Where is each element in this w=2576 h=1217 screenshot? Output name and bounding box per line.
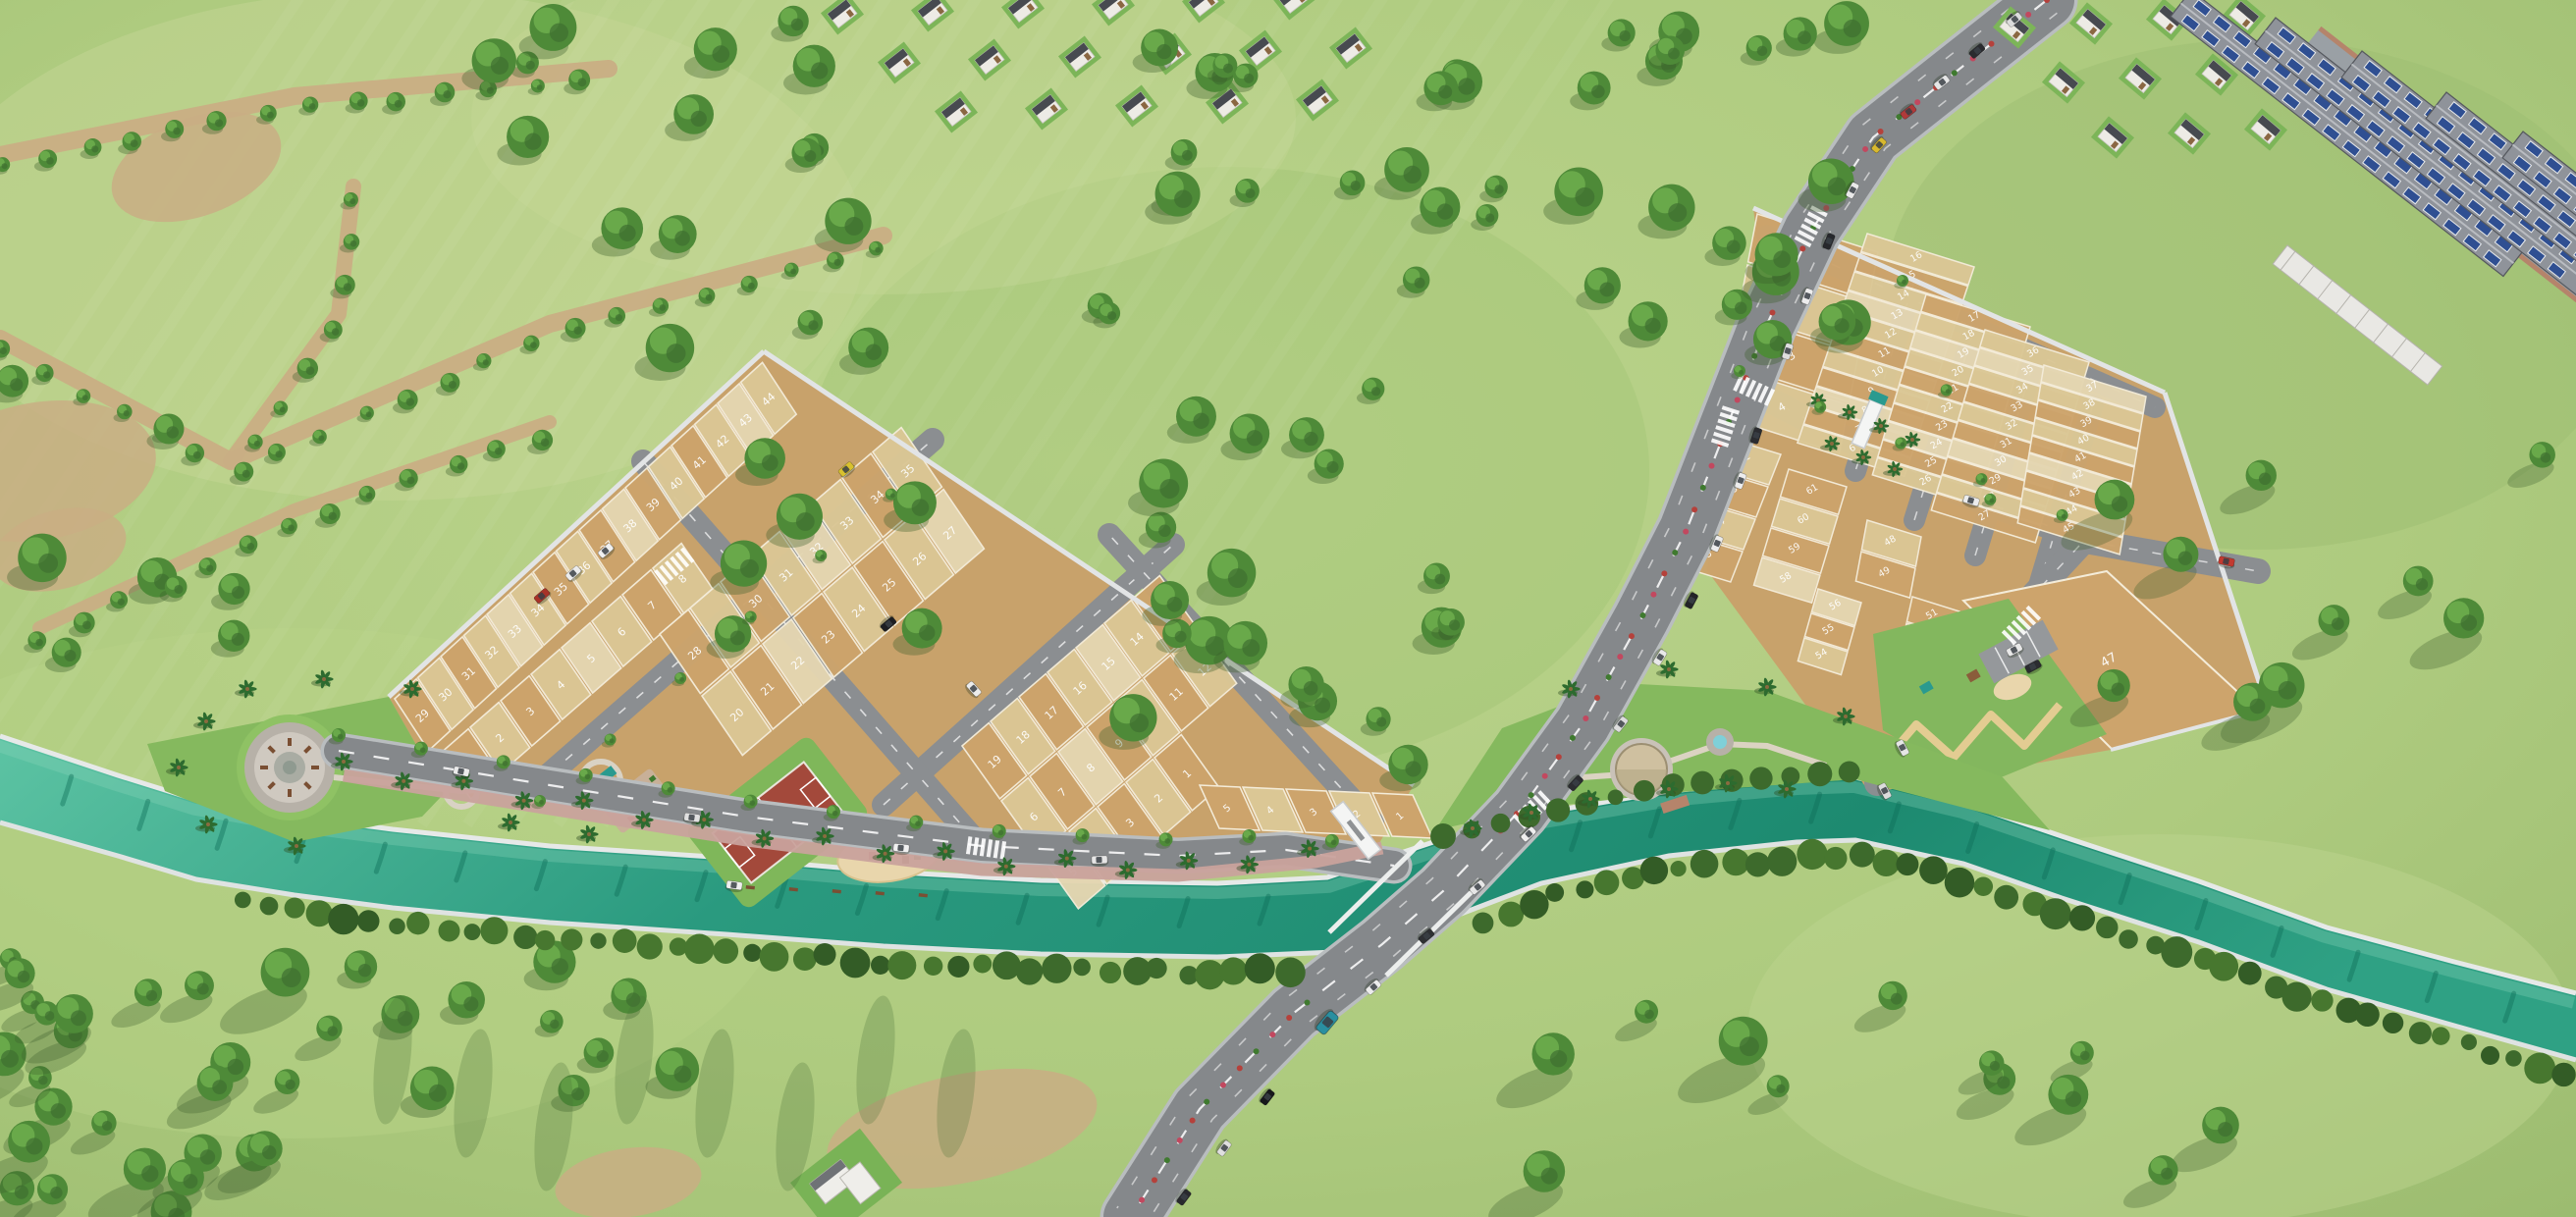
median-flowers: [1709, 463, 1715, 469]
shrub: [947, 956, 969, 978]
shrub: [513, 926, 537, 949]
shrub: [1546, 798, 1570, 821]
shrub: [2238, 962, 2262, 985]
median-flowers: [1629, 633, 1635, 639]
shrub: [406, 912, 429, 934]
shrub: [1520, 890, 1548, 919]
shrub: [743, 944, 761, 962]
shrub: [2481, 1046, 2499, 1065]
shrub: [535, 930, 555, 950]
shrub: [2209, 952, 2238, 981]
shrub: [1919, 856, 1948, 884]
bench: [288, 789, 292, 797]
shrub: [1016, 958, 1043, 984]
shrub: [1745, 852, 1770, 876]
median-flowers: [1661, 570, 1667, 576]
shrub: [2505, 1050, 2522, 1067]
shrub: [389, 919, 405, 935]
median-flowers: [1640, 612, 1646, 618]
shrub: [2409, 1022, 2432, 1044]
shrub: [285, 898, 305, 919]
median-flowers: [1769, 309, 1775, 315]
shrub: [439, 920, 460, 941]
shrub: [2551, 1063, 2575, 1086]
median-flowers: [1799, 245, 1805, 251]
shrub: [2040, 898, 2071, 929]
median-flowers: [1672, 550, 1678, 556]
shrub: [235, 892, 251, 909]
median-flowers: [1594, 695, 1600, 701]
shrub: [1945, 868, 1975, 898]
median-flowers: [1988, 41, 1994, 47]
shrub: [1749, 767, 1772, 789]
median-flowers: [1570, 735, 1576, 741]
shrub: [480, 917, 508, 944]
shrub: [613, 928, 637, 953]
shrub: [2461, 1034, 2477, 1050]
median-flowers: [1304, 1000, 1310, 1006]
shrub: [2524, 1052, 2555, 1084]
median-flowers: [1164, 1157, 1170, 1163]
shrub: [1722, 849, 1749, 876]
shrub: [2432, 1027, 2450, 1045]
median-flowers: [1220, 1083, 1226, 1088]
shrub: [1100, 962, 1121, 983]
shrub: [1850, 842, 1875, 868]
shrub: [993, 951, 1021, 979]
shrub: [1073, 959, 1091, 977]
bench: [288, 738, 292, 746]
median-flowers: [1556, 754, 1562, 760]
median-flowers: [1700, 485, 1706, 491]
shrub: [1690, 771, 1714, 795]
shrub: [1576, 880, 1593, 898]
shrub: [1896, 853, 1918, 875]
shrub: [1219, 957, 1247, 984]
median-flowers: [1914, 99, 1920, 105]
median-flowers: [1862, 146, 1868, 152]
shrub: [973, 955, 992, 974]
shrub: [464, 924, 481, 940]
shrub: [1973, 876, 1993, 896]
median-flowers: [1683, 529, 1689, 535]
shrub: [684, 934, 715, 965]
shrub: [357, 910, 379, 931]
shrub: [1640, 857, 1668, 884]
shrub: [1670, 861, 1686, 876]
shrub: [713, 938, 738, 964]
median-flowers: [1617, 654, 1623, 660]
shrub: [1608, 789, 1624, 805]
vehicle: [1091, 856, 1108, 868]
shrub: [2096, 917, 2119, 939]
shrub: [840, 948, 871, 979]
median-flowers: [1269, 1032, 1275, 1037]
shrub: [887, 951, 916, 979]
median-flowers: [1286, 1015, 1292, 1021]
median-flowers: [1583, 715, 1588, 721]
median-flowers: [2025, 12, 2031, 18]
shrub: [1767, 847, 1797, 876]
median-flowers: [1952, 70, 1958, 76]
shrub: [2355, 1003, 2380, 1028]
median-flowers: [1691, 506, 1697, 512]
masterplan-render: Plot numbers painted on parcels are the …: [0, 0, 2576, 1217]
shrub: [1634, 780, 1655, 802]
shrub: [2161, 936, 2192, 968]
shrub: [1147, 958, 1167, 979]
shrub: [1690, 850, 1719, 878]
shrub: [924, 957, 942, 976]
shrub: [2311, 989, 2333, 1011]
shrub: [1873, 850, 1900, 876]
median-flowers: [1878, 129, 1884, 134]
median-flowers: [1606, 674, 1612, 680]
median-flowers: [1254, 1048, 1260, 1054]
median-flowers: [1152, 1177, 1157, 1183]
shrub: [1275, 958, 1306, 988]
shrub: [2281, 982, 2311, 1012]
shrub: [1042, 954, 1071, 983]
shrub: [1430, 823, 1456, 849]
shrub: [1807, 762, 1832, 786]
scene-canvas: 2930313233343536373839404142434412345678…: [0, 0, 2576, 1217]
shrub: [871, 956, 889, 975]
shrub: [2069, 905, 2095, 930]
shrub: [1473, 913, 1494, 934]
shrub: [1245, 953, 1275, 983]
shrub: [1839, 762, 1860, 783]
shrub: [2119, 929, 2138, 949]
shrub: [561, 928, 582, 950]
shrub: [1824, 847, 1847, 870]
shrub: [637, 933, 663, 959]
median-flowers: [1177, 1138, 1183, 1143]
median-flowers: [1542, 773, 1548, 779]
bench: [260, 766, 268, 769]
shrub: [1594, 870, 1620, 895]
median-flowers: [1650, 592, 1656, 598]
shrub: [328, 904, 358, 934]
shrub: [2383, 1013, 2403, 1033]
shrub: [760, 942, 789, 972]
shrub: [1498, 902, 1524, 927]
shrub: [260, 897, 279, 916]
median-flowers: [1204, 1099, 1209, 1105]
shrub: [590, 932, 606, 948]
median-flowers: [1190, 1118, 1196, 1124]
shrub: [1545, 883, 1564, 902]
median-flowers: [1139, 1197, 1145, 1203]
shrub: [814, 943, 836, 966]
shrub: [1491, 814, 1511, 833]
shrub: [793, 947, 817, 971]
shrub: [1994, 885, 2018, 910]
bench: [311, 766, 319, 769]
shrub: [1797, 839, 1827, 870]
median-flowers: [1735, 397, 1741, 403]
median-flowers: [1237, 1065, 1243, 1071]
